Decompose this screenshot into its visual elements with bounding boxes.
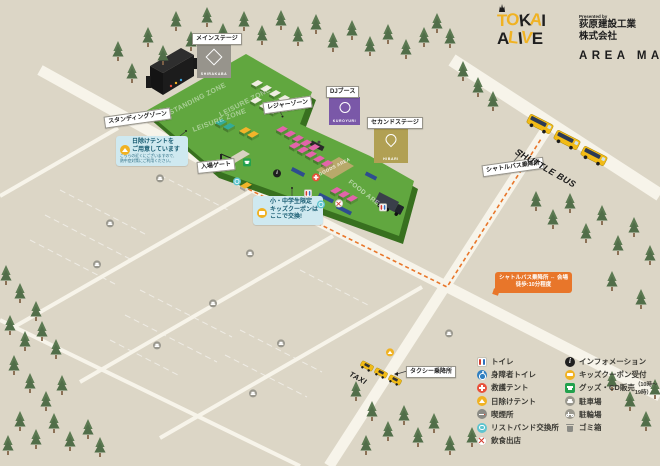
second-stage-label: セカンドステージ: [367, 117, 423, 129]
shirakaba-emblem-icon: [206, 49, 223, 66]
marker-toilet: [304, 187, 312, 195]
legend-item-bicycle-parking: 駐輪場: [565, 408, 660, 421]
dj-booth-name: KUROYURI: [329, 119, 360, 123]
legend-item-wristband-exchange: リストバンド交換所: [477, 421, 559, 434]
main-stage-emblem-box: SHIRAKABA: [197, 45, 231, 78]
logo-letter: A: [529, 10, 542, 28]
parking-icon: [277, 339, 285, 347]
marker-parking: [153, 339, 161, 347]
legend-item-shade-tent: 日除けテント: [477, 395, 559, 408]
marker-goods-cd: [243, 156, 251, 164]
marker-toilet: [379, 201, 387, 209]
dj-booth-label: DJブース: [326, 86, 359, 98]
goods-cd-icon: [243, 158, 251, 166]
goods-cd-icon: [565, 383, 575, 393]
parking-icon: [153, 341, 161, 349]
shuttle-note-line-2: 徒歩:10分程度: [499, 282, 568, 289]
area-map-title: AREA MAP: [579, 50, 660, 62]
marker-shade-tent: [386, 346, 394, 354]
parking-icon: [106, 219, 114, 227]
legend-item-smoking-area: 喫煙所: [477, 408, 559, 421]
legend-label: キッズクーポン受付: [579, 369, 647, 380]
wristband-exchange-icon: [317, 200, 325, 208]
marker-parking: [277, 337, 285, 345]
legend-label-sub: （10時〜19時）: [635, 380, 660, 396]
accessible-toilet-icon: [477, 370, 487, 380]
parking-icon: [209, 299, 217, 307]
marker-wristband-exchange: [317, 198, 325, 206]
legend-label: 飲食出店: [491, 435, 521, 446]
wristband-exchange-icon: [233, 177, 241, 185]
taxi-stop-label: タクシー乗降所: [406, 366, 456, 378]
dj-booth-emblem-box: KUROYURI: [329, 97, 360, 125]
kids-coupon-callout: 小・中学生限定 キッズクーポンは ここで交換!: [253, 196, 323, 225]
legend-item-trash: ゴミ箱: [565, 421, 660, 434]
map-base: [0, 0, 660, 466]
legend-label: リストバンド交換所: [491, 422, 559, 433]
first-aid-tent-icon: [312, 173, 320, 181]
parking-icon: [156, 174, 164, 182]
second-stage-emblem-box: HIBARI: [374, 127, 408, 163]
shade-tent-callout: 日除けテントを ご用意しています こちらの近くにございますので、 熱中症対策にご…: [116, 136, 188, 166]
area-map: STANDING ZONE LEISURE ZONE LEISURE ZONE …: [0, 0, 660, 466]
legend-item-first-aid-tent: 救護テント: [477, 381, 559, 394]
legend-label: グッズ・CD販売: [579, 382, 635, 393]
bicycle-parking-icon: [565, 409, 575, 419]
legend-label: 救護テント: [491, 382, 529, 393]
wristband-exchange-icon: [477, 423, 487, 433]
legend-item-goods-cd: グッズ・CD販売（10時〜19時）: [565, 381, 660, 394]
toilet-icon: [379, 203, 387, 211]
shade-callout-title-1: 日除けテントを: [132, 139, 184, 147]
parking-icon: [445, 329, 453, 337]
legend-label: トイレ: [491, 356, 514, 367]
shuttle-walk-note: シャトルバス乗降所 ⇔ 会場 徒歩:10分程度: [495, 272, 572, 293]
shade-callout-body-2: 熱中症対策にご利用ください。: [120, 159, 184, 164]
main-stage-label: メインステージ: [192, 33, 242, 45]
shade-tent-icon: [386, 348, 394, 356]
legend-label: インフォメーション: [579, 356, 646, 367]
parking-icon: [565, 396, 575, 406]
legend-item-accessible-toilet: 身障者トイレ: [477, 368, 559, 381]
second-stage-name: HIBARI: [374, 157, 408, 161]
marker-food-stalls: [335, 197, 343, 205]
hibari-emblem-icon: [383, 132, 399, 148]
marker-first-aid-tent: [312, 171, 320, 179]
company-name-line1: 荻原建設工業: [579, 20, 636, 31]
kids-coupon-icon: [257, 208, 267, 218]
marker-information: i: [273, 167, 281, 175]
kids-callout-line-2: キッズクーポンは: [270, 207, 319, 215]
shade-tent-icon: [477, 396, 487, 406]
legend-label: 駐車場: [579, 396, 602, 407]
logo-title-line2: ALIVE: [497, 30, 542, 49]
kuroyuri-emblem-icon: [339, 102, 350, 113]
legend-label: 喫煙所: [491, 409, 514, 420]
legend-item-toilet: トイレ: [477, 355, 559, 368]
toilet-icon: [304, 189, 312, 197]
legend-item-food-stalls: 飲食出店: [477, 434, 559, 447]
toilet-icon: [477, 357, 487, 367]
legend-label: ゴミ箱: [579, 422, 602, 433]
legend-right-column: iインフォメーションキッズクーポン受付グッズ・CD販売（10時〜19時）駐車場駐…: [565, 355, 660, 434]
logo-letter: E: [532, 30, 542, 47]
shade-tent-icon: [120, 145, 130, 155]
main-stage-name: SHIRAKABA: [197, 72, 231, 76]
smoking-area-icon: [477, 409, 487, 419]
marker-parking: [249, 387, 257, 395]
food-stalls-icon: [477, 436, 487, 446]
marker-parking: [445, 327, 453, 335]
legend-label: 日除けテント: [491, 396, 536, 407]
kids-callout-line-1: 小・中学生限定: [270, 199, 319, 207]
legend-label: 身障者トイレ: [491, 369, 536, 380]
information-icon: i: [273, 169, 281, 177]
legend-left-column: トイレ身障者トイレ救護テント日除けテント喫煙所リストバンド交換所飲食出店: [477, 355, 559, 447]
first-aid-tent-icon: [477, 383, 487, 393]
food-stalls-icon: [335, 199, 343, 207]
marker-parking: [93, 258, 101, 266]
kids-callout-line-3: ここで交換!: [270, 214, 319, 222]
company-name-line2: 株式会社: [579, 32, 617, 43]
trash-icon: [565, 423, 575, 433]
legend-item-information: iインフォメーション: [565, 355, 660, 368]
marker-parking: [246, 247, 254, 255]
marker-parking: [156, 172, 164, 180]
legend-item-parking: 駐車場: [565, 395, 660, 408]
kids-coupon-icon: [565, 370, 575, 380]
event-logo: TOKAI ALIVE Presented by 荻原建設工業 株式会社 ARE…: [487, 6, 657, 64]
marker-parking: [106, 217, 114, 225]
legend-label: 駐輪場: [579, 409, 602, 420]
parking-icon: [93, 260, 101, 268]
marker-parking: [209, 297, 217, 305]
parking-icon: [246, 249, 254, 257]
information-icon: i: [565, 357, 575, 367]
parking-icon: [249, 389, 257, 397]
marker-wristband-exchange: [233, 175, 241, 183]
shade-callout-title-2: ご用意しています: [132, 147, 184, 155]
